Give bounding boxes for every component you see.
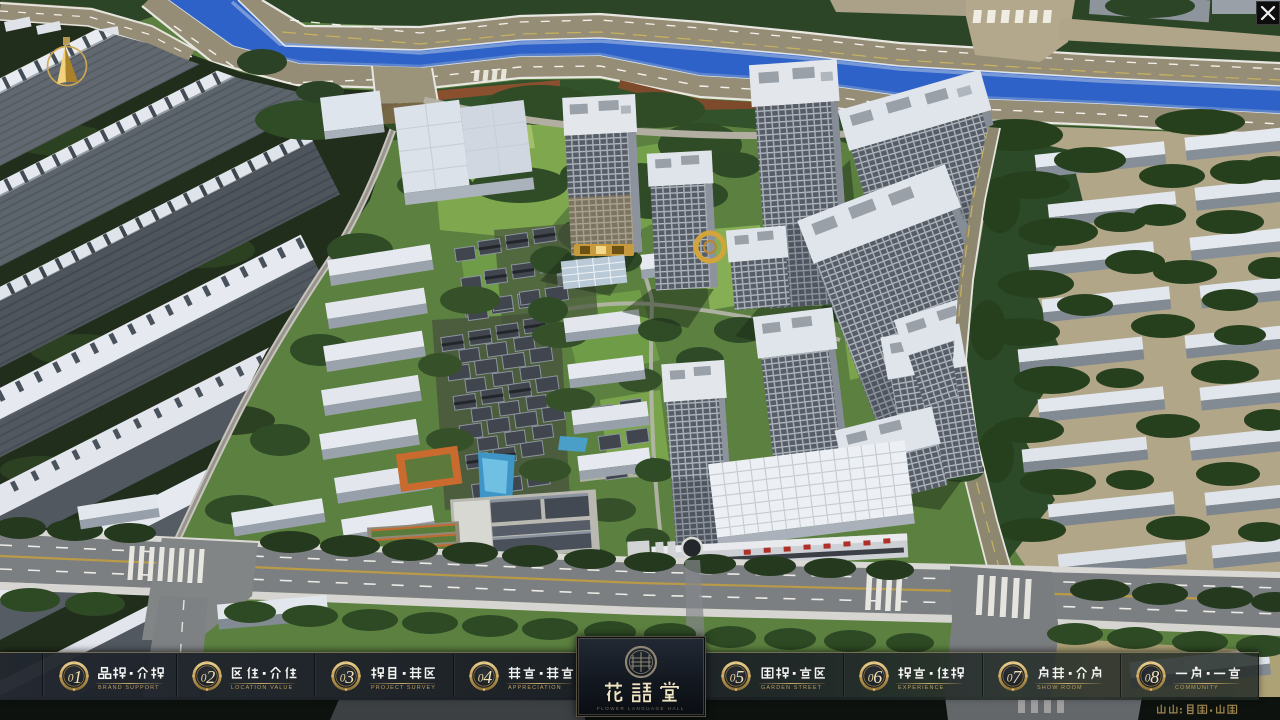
- svg-text:2: 2: [206, 667, 215, 687]
- svg-text:8: 8: [1150, 667, 1159, 687]
- svg-text:FLOWER LANGUAGE HALL: FLOWER LANGUAGE HALL: [597, 706, 685, 711]
- svg-text:4: 4: [483, 667, 492, 687]
- svg-text:7: 7: [1012, 667, 1022, 687]
- svg-text:1: 1: [73, 667, 82, 687]
- svg-text:3: 3: [344, 667, 354, 687]
- svg-text:6: 6: [873, 667, 882, 687]
- svg-text:5: 5: [735, 667, 744, 687]
